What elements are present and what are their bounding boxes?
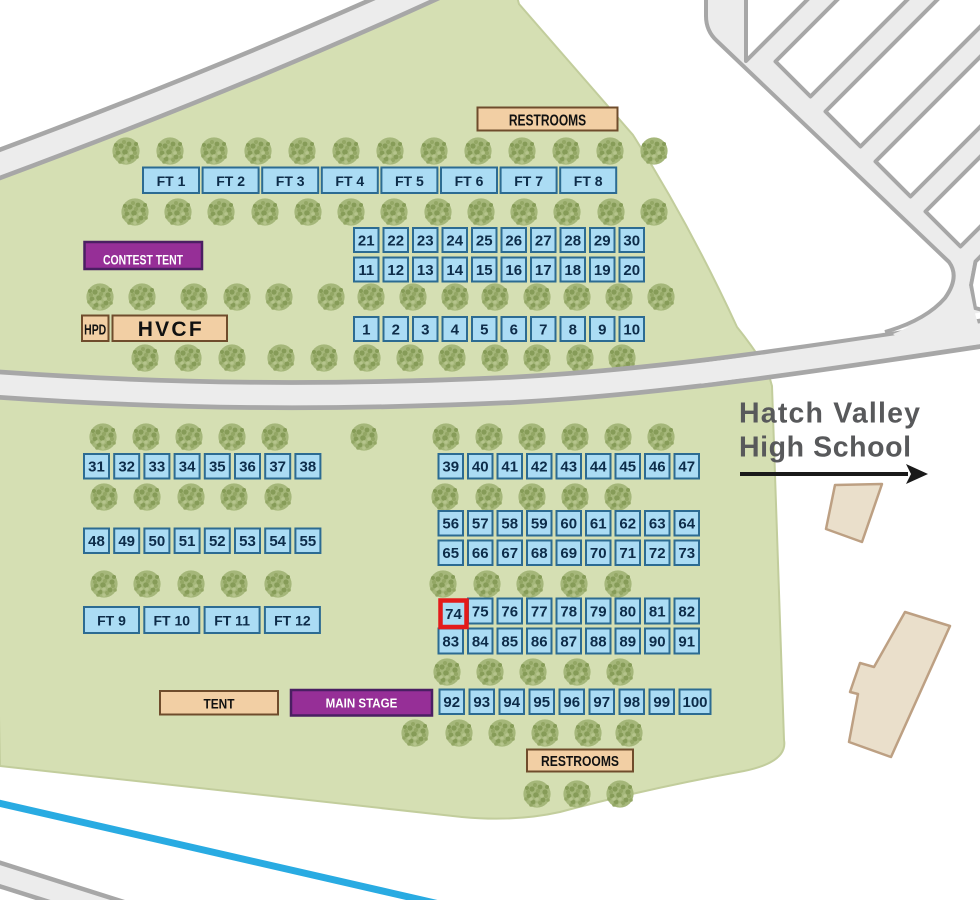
svg-text:67: 67: [501, 545, 518, 562]
svg-text:33: 33: [149, 459, 166, 476]
svg-text:57: 57: [472, 516, 489, 533]
svg-text:91: 91: [678, 633, 695, 650]
svg-text:FT 7: FT 7: [514, 173, 543, 189]
svg-text:9: 9: [598, 321, 606, 338]
svg-text:72: 72: [649, 545, 666, 562]
svg-text:42: 42: [531, 459, 548, 476]
svg-text:59: 59: [531, 516, 548, 533]
svg-text:65: 65: [442, 545, 459, 562]
svg-text:FT 9: FT 9: [97, 613, 126, 629]
svg-text:RESTROOMS: RESTROOMS: [541, 753, 619, 769]
svg-text:58: 58: [501, 516, 518, 533]
svg-text:79: 79: [590, 603, 607, 620]
svg-text:FT 10: FT 10: [154, 613, 191, 629]
svg-text:88: 88: [590, 633, 607, 650]
svg-text:51: 51: [179, 533, 196, 550]
svg-text:18: 18: [564, 262, 581, 279]
svg-text:98: 98: [623, 694, 640, 711]
svg-text:17: 17: [535, 262, 552, 279]
svg-text:75: 75: [472, 603, 489, 620]
svg-text:RESTROOMS: RESTROOMS: [509, 111, 586, 129]
svg-text:FT 12: FT 12: [274, 613, 311, 629]
svg-text:81: 81: [649, 603, 666, 620]
svg-text:44: 44: [590, 459, 607, 476]
svg-text:93: 93: [473, 694, 490, 711]
svg-text:95: 95: [533, 694, 550, 711]
svg-text:24: 24: [446, 232, 463, 249]
svg-text:50: 50: [149, 533, 166, 550]
svg-text:66: 66: [472, 545, 489, 562]
svg-text:14: 14: [446, 262, 463, 279]
svg-text:45: 45: [619, 459, 636, 476]
svg-text:69: 69: [560, 545, 577, 562]
svg-text:MAIN STAGE: MAIN STAGE: [326, 696, 398, 711]
svg-text:90: 90: [649, 633, 666, 650]
svg-text:FT 1: FT 1: [157, 173, 186, 189]
svg-text:85: 85: [501, 633, 518, 650]
svg-text:FT 4: FT 4: [335, 173, 364, 189]
svg-text:3: 3: [421, 321, 429, 338]
svg-text:52: 52: [209, 533, 226, 550]
svg-text:61: 61: [590, 516, 607, 533]
svg-text:13: 13: [417, 262, 434, 279]
svg-text:21: 21: [358, 232, 375, 249]
svg-text:39: 39: [442, 459, 459, 476]
svg-text:8: 8: [569, 321, 577, 338]
svg-text:46: 46: [649, 459, 666, 476]
svg-text:CONTEST TENT: CONTEST TENT: [103, 252, 184, 268]
svg-text:96: 96: [563, 694, 580, 711]
svg-text:34: 34: [179, 459, 196, 476]
svg-text:28: 28: [564, 232, 581, 249]
svg-text:30: 30: [623, 232, 640, 249]
svg-text:53: 53: [239, 533, 256, 550]
svg-text:2: 2: [392, 321, 400, 338]
svg-text:87: 87: [560, 633, 577, 650]
svg-text:64: 64: [678, 516, 695, 533]
svg-text:78: 78: [560, 603, 577, 620]
svg-text:HPD: HPD: [84, 322, 106, 338]
svg-text:89: 89: [619, 633, 636, 650]
svg-text:6: 6: [510, 321, 518, 338]
svg-text:31: 31: [88, 459, 105, 476]
svg-text:5: 5: [480, 321, 488, 338]
svg-text:Hatch Valley: Hatch Valley: [739, 398, 920, 430]
svg-text:25: 25: [476, 232, 493, 249]
svg-text:62: 62: [619, 516, 636, 533]
svg-text:FT 2: FT 2: [216, 173, 245, 189]
svg-text:80: 80: [619, 603, 636, 620]
svg-text:54: 54: [269, 533, 286, 550]
svg-text:27: 27: [535, 232, 552, 249]
svg-text:36: 36: [239, 459, 256, 476]
svg-text:1: 1: [362, 321, 370, 338]
svg-text:92: 92: [443, 694, 460, 711]
svg-text:37: 37: [269, 459, 286, 476]
svg-text:10: 10: [623, 321, 640, 338]
svg-text:15: 15: [476, 262, 493, 279]
svg-text:55: 55: [300, 533, 317, 550]
svg-text:26: 26: [505, 232, 522, 249]
svg-text:47: 47: [678, 459, 695, 476]
svg-text:94: 94: [503, 694, 520, 711]
svg-text:82: 82: [678, 603, 695, 620]
svg-text:19: 19: [594, 262, 611, 279]
svg-text:86: 86: [531, 633, 548, 650]
svg-text:68: 68: [531, 545, 548, 562]
svg-text:High School: High School: [739, 432, 911, 464]
svg-text:40: 40: [472, 459, 489, 476]
svg-text:76: 76: [501, 603, 518, 620]
svg-text:23: 23: [417, 232, 434, 249]
svg-text:49: 49: [118, 533, 135, 550]
svg-text:84: 84: [472, 633, 489, 650]
svg-text:73: 73: [678, 545, 695, 562]
svg-text:32: 32: [118, 459, 135, 476]
svg-text:35: 35: [209, 459, 226, 476]
svg-text:7: 7: [539, 321, 547, 338]
svg-text:12: 12: [387, 262, 404, 279]
svg-text:FT 6: FT 6: [455, 173, 484, 189]
svg-text:29: 29: [594, 232, 611, 249]
svg-text:TENT: TENT: [204, 696, 235, 712]
svg-text:48: 48: [88, 533, 105, 550]
svg-text:60: 60: [560, 516, 577, 533]
svg-text:70: 70: [590, 545, 607, 562]
svg-text:4: 4: [451, 321, 460, 338]
svg-text:99: 99: [653, 694, 670, 711]
svg-text:43: 43: [560, 459, 577, 476]
svg-text:20: 20: [623, 262, 640, 279]
svg-text:56: 56: [442, 516, 459, 533]
svg-text:FT 8: FT 8: [574, 173, 603, 189]
svg-text:97: 97: [593, 694, 610, 711]
svg-text:11: 11: [358, 262, 374, 279]
svg-text:16: 16: [505, 262, 522, 279]
svg-text:100: 100: [682, 694, 707, 711]
svg-text:83: 83: [442, 633, 459, 650]
svg-text:71: 71: [619, 545, 636, 562]
svg-text:22: 22: [387, 232, 404, 249]
svg-text:63: 63: [649, 516, 666, 533]
svg-text:FT 11: FT 11: [214, 613, 250, 629]
svg-text:77: 77: [531, 603, 548, 620]
svg-text:FT 3: FT 3: [276, 173, 305, 189]
svg-text:38: 38: [300, 459, 317, 476]
svg-text:FT 5: FT 5: [395, 173, 424, 189]
svg-text:74: 74: [445, 606, 462, 623]
svg-text:41: 41: [501, 459, 518, 476]
